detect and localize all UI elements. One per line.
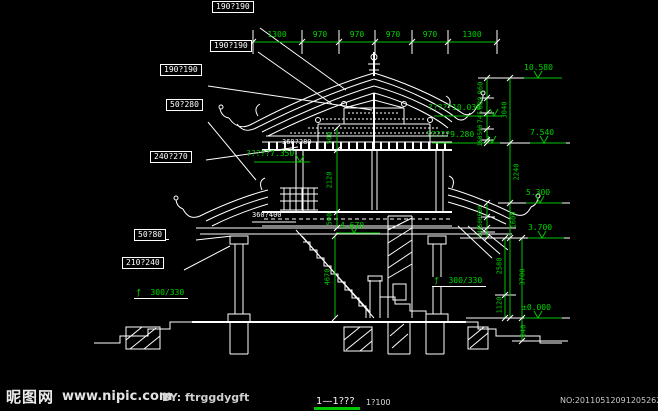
elev-9280: ?????9.280 bbox=[426, 131, 474, 139]
label-floor-beam: 360?400 bbox=[252, 212, 282, 219]
upper-story bbox=[262, 150, 452, 226]
elev-7540: 7.540 bbox=[530, 129, 554, 137]
image-serial-number: NO:20110512091205262000 bbox=[560, 396, 658, 405]
vdim-640: 640 bbox=[521, 325, 528, 338]
top-dim-2: 970 bbox=[313, 31, 327, 39]
stack5-row2: 240?270 bbox=[150, 151, 192, 163]
dimension-lines bbox=[253, 42, 566, 341]
stack7-row2: 210?240 bbox=[122, 257, 164, 269]
top-dim-6: 1300 bbox=[462, 31, 481, 39]
vdim-c500a: 500 bbox=[327, 132, 334, 145]
section-title-underline bbox=[314, 407, 360, 410]
label-right-column-size: ƒ 300/330 bbox=[432, 277, 486, 287]
vdim-c500b: 500 bbox=[327, 213, 334, 226]
vdim-960: 960 bbox=[478, 82, 485, 95]
elev-0000: ±0.000 bbox=[522, 304, 551, 312]
vdim-2240: 2240 bbox=[514, 164, 521, 181]
stack1-row3: 190?190 bbox=[212, 1, 254, 13]
elev-10030: ?????10.030 bbox=[428, 104, 481, 112]
vdim-160: 160 bbox=[478, 136, 484, 147]
stack4-row2: 50?280 bbox=[166, 99, 203, 111]
elev-5300: 5.300 bbox=[526, 189, 550, 197]
vdim-680b: 680 bbox=[478, 206, 484, 217]
stack6-row2: 50?80 bbox=[134, 229, 166, 241]
vdim-2580: 2580 bbox=[497, 258, 504, 275]
label-left-column-size: ƒ 300/330 bbox=[134, 289, 188, 299]
cad-canvas: 1300 970 970 970 970 1300 960 680 745 50… bbox=[0, 0, 658, 411]
vdim-1120: 1120 bbox=[497, 297, 504, 314]
wall-section bbox=[388, 216, 412, 318]
top-dim-1: 1300 bbox=[267, 31, 286, 39]
section-title: 1—1??? bbox=[316, 396, 355, 407]
vdim-745: 745 bbox=[478, 111, 485, 124]
elev-3700: 3.700 bbox=[528, 224, 552, 232]
vdim-1600: 1600 bbox=[511, 212, 518, 229]
cad-linework bbox=[0, 0, 658, 411]
watermark-site-name: 昵图网 bbox=[6, 386, 54, 407]
watermark-byline: BY: ftrggdygft bbox=[162, 391, 249, 404]
vdim-3040: 3040 bbox=[502, 102, 509, 119]
ground-foundation bbox=[94, 322, 562, 354]
vdim-3700: 3700 bbox=[520, 269, 527, 286]
elev-7350: ?????7.350 bbox=[246, 150, 294, 158]
stack3-row3: 190?190 bbox=[160, 64, 202, 76]
vdim-4670: 4670 bbox=[325, 269, 332, 286]
elev-10580: 10.580 bbox=[524, 64, 553, 72]
watermark-site-url: www.nipic.com bbox=[62, 389, 172, 404]
stack2-row3: 190?190 bbox=[210, 40, 252, 52]
top-dim-4: 970 bbox=[386, 31, 400, 39]
vdim-140: 140 bbox=[478, 227, 484, 238]
top-dim-5: 970 bbox=[423, 31, 437, 39]
label-eave-beam: 360?280 bbox=[282, 139, 312, 146]
top-dim-3: 970 bbox=[350, 31, 364, 39]
ridge-finial bbox=[368, 52, 380, 76]
vdim-2120: 2120 bbox=[327, 172, 334, 189]
drawing-scale: 1?100 bbox=[366, 398, 391, 407]
vdim-500: 500 bbox=[478, 125, 484, 136]
elev-4670: 4.670 bbox=[340, 222, 364, 230]
